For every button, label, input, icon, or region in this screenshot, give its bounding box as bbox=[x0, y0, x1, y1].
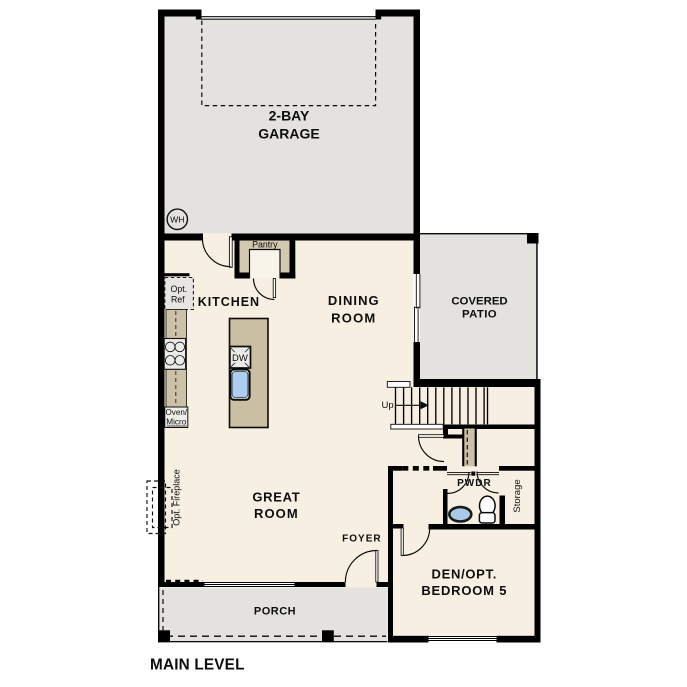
svg-text:PORCH: PORCH bbox=[254, 606, 296, 618]
svg-text:COVERED: COVERED bbox=[451, 296, 507, 308]
svg-text:GARAGE: GARAGE bbox=[258, 125, 319, 141]
svg-text:KITCHEN: KITCHEN bbox=[198, 295, 260, 309]
svg-text:DINING: DINING bbox=[328, 293, 380, 308]
svg-text:PATIO: PATIO bbox=[462, 309, 497, 321]
svg-text:FOYER: FOYER bbox=[342, 534, 381, 545]
svg-text:Micro: Micro bbox=[166, 417, 186, 427]
svg-text:Opt. Fireplace: Opt. Fireplace bbox=[172, 469, 182, 526]
svg-text:Storage: Storage bbox=[512, 479, 523, 512]
svg-text:PWDR: PWDR bbox=[457, 478, 492, 489]
svg-text:Up: Up bbox=[382, 400, 394, 411]
svg-text:BEDROOM 5: BEDROOM 5 bbox=[421, 583, 507, 598]
svg-text:GREAT: GREAT bbox=[252, 489, 300, 504]
svg-text:MAIN LEVEL: MAIN LEVEL bbox=[150, 657, 245, 674]
svg-text:Opt.: Opt. bbox=[170, 284, 187, 294]
svg-text:DW: DW bbox=[232, 353, 248, 364]
svg-text:Ref: Ref bbox=[171, 294, 185, 304]
svg-text:ROOM: ROOM bbox=[331, 310, 376, 325]
svg-text:ROOM: ROOM bbox=[254, 506, 299, 521]
svg-text:2-BAY: 2-BAY bbox=[269, 108, 310, 124]
svg-text:Pantry: Pantry bbox=[252, 240, 278, 250]
svg-text:DEN/OPT.: DEN/OPT. bbox=[432, 566, 498, 581]
svg-text:WH: WH bbox=[170, 215, 184, 225]
